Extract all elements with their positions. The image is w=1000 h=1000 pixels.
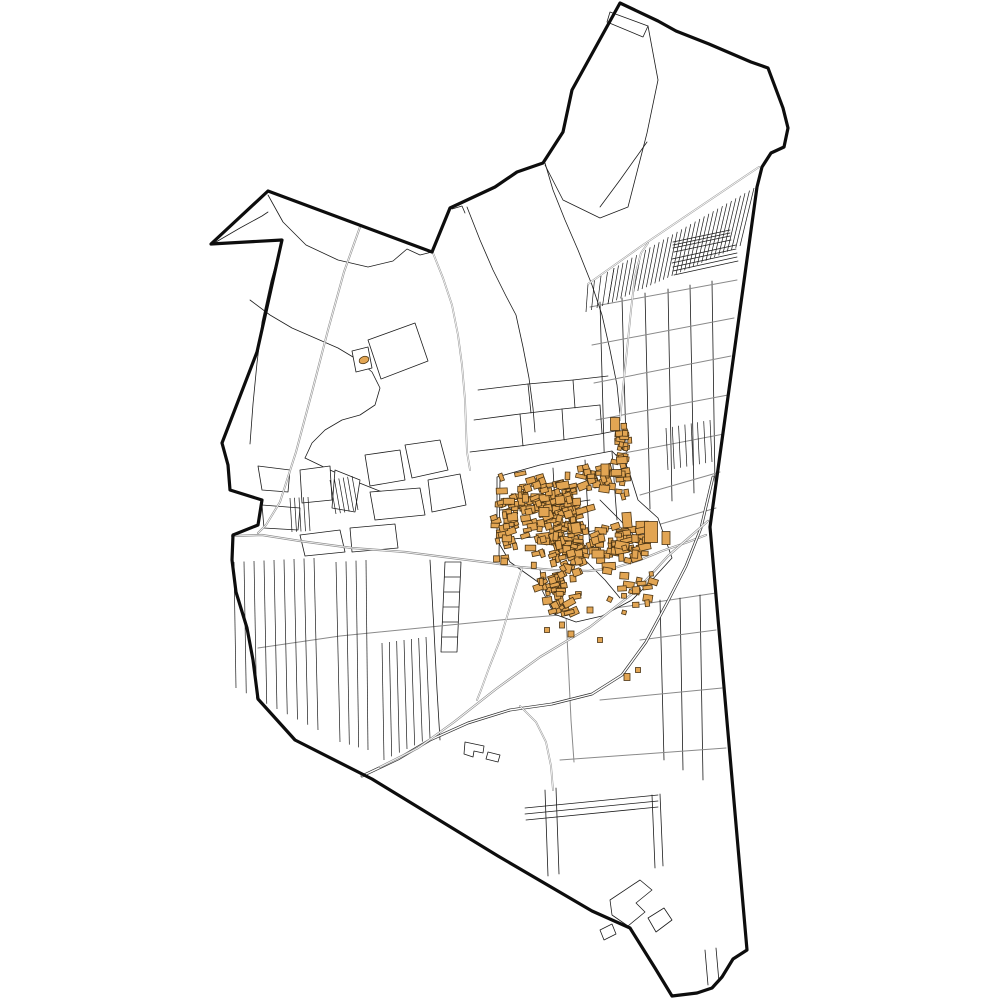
building — [643, 585, 653, 590]
building — [555, 540, 562, 549]
parcel-line — [525, 801, 658, 814]
parcel-line — [652, 795, 655, 868]
building — [622, 610, 627, 615]
building — [537, 526, 542, 532]
strip-field-line — [603, 272, 608, 306]
parcel-polygon — [486, 752, 500, 762]
building — [649, 571, 654, 576]
strip-field-line — [714, 203, 726, 257]
parcel-line — [520, 414, 523, 446]
building — [556, 515, 563, 523]
building — [509, 523, 514, 527]
building — [599, 484, 610, 493]
strip-field-line — [617, 263, 624, 300]
parcel-line — [545, 163, 620, 415]
parcel-line — [467, 207, 535, 432]
building — [633, 602, 640, 607]
strip-field-line — [642, 247, 650, 289]
building — [503, 498, 514, 504]
building — [587, 485, 592, 490]
building — [539, 578, 543, 585]
building — [616, 477, 624, 482]
parcel-line — [594, 356, 731, 383]
building — [531, 562, 536, 568]
strip-field-line — [638, 250, 646, 291]
strip-field-line — [621, 260, 628, 298]
building — [522, 494, 528, 502]
building — [570, 488, 576, 493]
building — [550, 559, 557, 567]
building — [602, 567, 612, 575]
building — [621, 423, 627, 429]
strip-field-line — [685, 425, 687, 467]
parcel-polygon — [405, 440, 448, 478]
map-page — [0, 0, 1000, 1000]
parcel-polygon — [464, 742, 484, 757]
building — [577, 465, 583, 472]
building-large — [555, 495, 565, 504]
building-large — [636, 668, 641, 673]
parcel-line — [640, 472, 720, 495]
road-core — [433, 253, 470, 470]
strip-field-line — [710, 420, 712, 462]
parcel-line — [562, 409, 564, 440]
building — [518, 486, 522, 492]
strip-field-line — [336, 562, 340, 742]
strip-field-line — [397, 641, 400, 753]
road — [520, 706, 553, 790]
building-large — [560, 622, 565, 628]
parcel-line — [478, 376, 608, 390]
building-large — [624, 674, 630, 681]
strip-field-line — [672, 427, 674, 469]
building — [556, 591, 563, 596]
strip-field-line — [731, 193, 744, 250]
strip-field-line — [672, 229, 682, 276]
parcel-line — [545, 26, 658, 218]
strip-field-line — [655, 240, 664, 284]
strip-field-line — [586, 284, 588, 312]
strip-field-line — [404, 640, 407, 749]
building — [621, 593, 626, 598]
strip-field-line — [679, 426, 681, 468]
building-large — [598, 638, 603, 643]
building — [495, 538, 500, 544]
building — [568, 533, 575, 537]
building — [546, 591, 551, 596]
building — [598, 534, 605, 542]
building — [619, 442, 624, 448]
parcel-line — [660, 600, 664, 760]
building — [587, 474, 595, 479]
building — [491, 523, 500, 528]
map-canvas — [0, 0, 1000, 1000]
strip-field-line — [382, 643, 384, 760]
parcel-line — [660, 794, 663, 866]
strip-field-line — [625, 258, 632, 297]
parcel-polygon — [370, 488, 425, 520]
strip-field-line — [697, 422, 699, 464]
building — [553, 532, 559, 541]
parcel-line — [600, 142, 647, 207]
building — [632, 586, 640, 593]
strip-field-line — [668, 232, 678, 278]
parcel-line — [716, 948, 719, 982]
building-large — [568, 631, 574, 637]
building — [622, 430, 628, 436]
parcel-polygon — [428, 474, 466, 512]
building — [546, 583, 551, 588]
building — [565, 472, 570, 480]
building-large — [592, 550, 604, 558]
parcel-polygon — [365, 450, 405, 486]
strip-field-line — [651, 242, 660, 285]
building — [611, 469, 622, 476]
parcel-line — [590, 280, 737, 307]
building-large — [645, 522, 658, 543]
parcel-line — [700, 595, 703, 780]
building-large — [601, 464, 609, 476]
building — [551, 588, 556, 593]
strip-field-line — [666, 428, 668, 470]
parcel-line — [430, 560, 440, 740]
building-large — [662, 532, 670, 545]
building — [520, 515, 530, 522]
parcel-line — [474, 405, 600, 420]
buildings-layer — [358, 355, 670, 680]
parcel-line — [250, 242, 282, 444]
parcel-polygon — [610, 880, 652, 926]
strip-field-line — [294, 559, 298, 720]
strip-field-line — [426, 637, 430, 738]
parcel-line — [673, 253, 737, 267]
parcel-line — [668, 289, 672, 501]
building — [501, 558, 508, 565]
road — [477, 568, 522, 700]
parcel-line — [596, 395, 728, 420]
strip-field-line — [356, 561, 359, 748]
building — [632, 550, 638, 558]
building — [525, 545, 536, 551]
building-large — [571, 522, 582, 533]
building — [502, 512, 507, 519]
building — [573, 498, 581, 506]
strip-field-line — [646, 245, 654, 287]
strip-field-line — [659, 237, 668, 282]
parcel-line — [705, 950, 708, 985]
strip-field-line — [264, 561, 267, 704]
parcel-line — [690, 285, 694, 493]
building — [624, 489, 629, 496]
parcel-line — [674, 261, 738, 275]
parcel-line — [470, 430, 620, 452]
building — [624, 446, 628, 450]
building — [632, 535, 639, 543]
building — [615, 533, 621, 537]
strip-field-line — [419, 638, 423, 742]
parcel-line — [673, 257, 737, 271]
building — [645, 600, 650, 607]
parcel-polygon — [600, 924, 616, 940]
building — [620, 572, 629, 579]
parcel-polygon — [262, 505, 300, 530]
parcel-line — [680, 598, 683, 770]
building-large — [545, 628, 550, 633]
road — [433, 253, 470, 470]
parcel-polygon — [368, 323, 428, 379]
parcel-polygon — [300, 466, 332, 503]
building — [637, 581, 646, 586]
building-large — [611, 418, 620, 431]
building — [573, 539, 583, 543]
building — [618, 586, 627, 591]
strip-field-line — [346, 561, 349, 744]
strip-field-line — [389, 642, 391, 756]
building — [525, 508, 533, 515]
strip-field-line — [411, 639, 414, 745]
building — [561, 526, 567, 531]
parcel-line — [560, 748, 726, 760]
building — [512, 543, 517, 550]
building-large — [622, 512, 632, 528]
parcel-line — [600, 688, 722, 700]
parcel-line — [545, 790, 548, 876]
building-large — [587, 607, 593, 613]
strip-field-line — [284, 560, 287, 715]
strip-field-line — [314, 558, 318, 730]
parcel-line — [645, 293, 650, 509]
strip-field-line — [736, 191, 750, 248]
building — [503, 523, 509, 529]
strip-field-line — [274, 560, 277, 709]
building-large — [539, 508, 549, 517]
strip-field-line — [663, 234, 672, 279]
parcel-line — [573, 380, 575, 408]
building — [641, 551, 648, 556]
building — [616, 456, 627, 464]
building — [494, 556, 500, 562]
strip-field-line — [366, 560, 368, 750]
parcel-polygon — [648, 908, 672, 932]
strip-field-line — [704, 421, 706, 463]
strip-field-line — [727, 196, 740, 252]
building — [540, 536, 547, 543]
building — [622, 545, 628, 551]
building — [496, 488, 507, 494]
parcel-line — [712, 281, 715, 486]
parcel-line — [556, 788, 559, 874]
